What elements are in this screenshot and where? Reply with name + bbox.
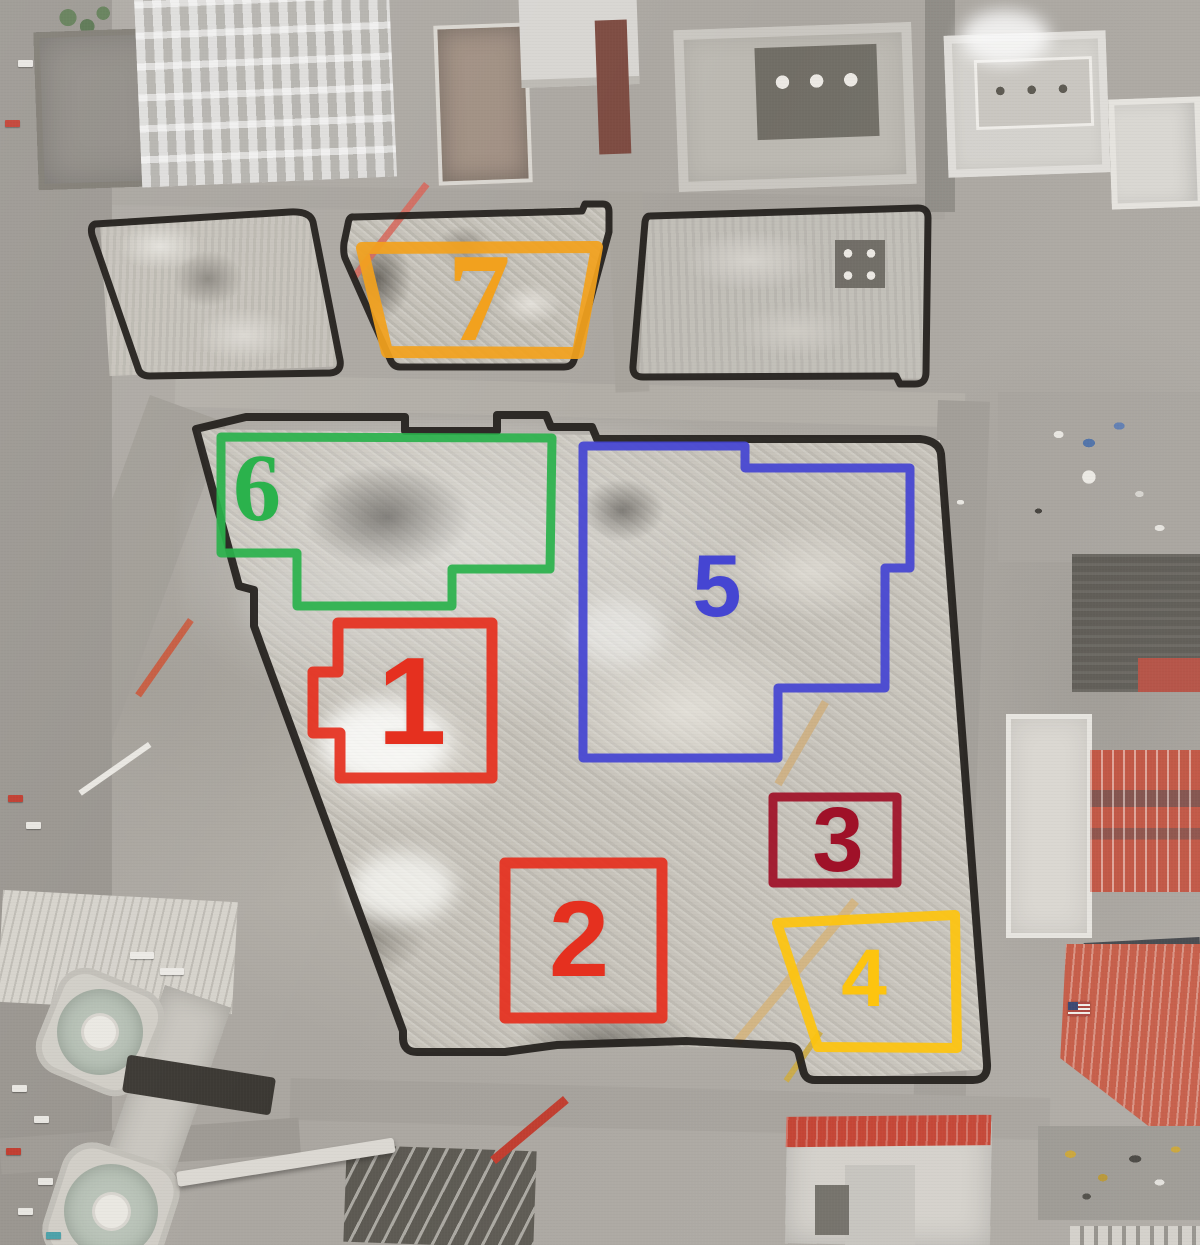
aerial-photo-stage: 1 2 3 4 5 6 7 <box>0 0 1200 1245</box>
zone-label-wtc-1: 1 <box>378 640 447 764</box>
photo-grain <box>0 0 1200 1245</box>
zone-label-wtc-6: 6 <box>233 440 281 536</box>
aerial-photo <box>0 0 1200 1245</box>
zone-label-wtc-3: 3 <box>812 794 863 886</box>
zone-label-wtc-7: 7 <box>448 236 511 362</box>
zone-label-wtc-4: 4 <box>841 938 887 1020</box>
zone-label-wtc-5: 5 <box>693 542 742 630</box>
zone-label-wtc-2: 2 <box>549 885 609 993</box>
